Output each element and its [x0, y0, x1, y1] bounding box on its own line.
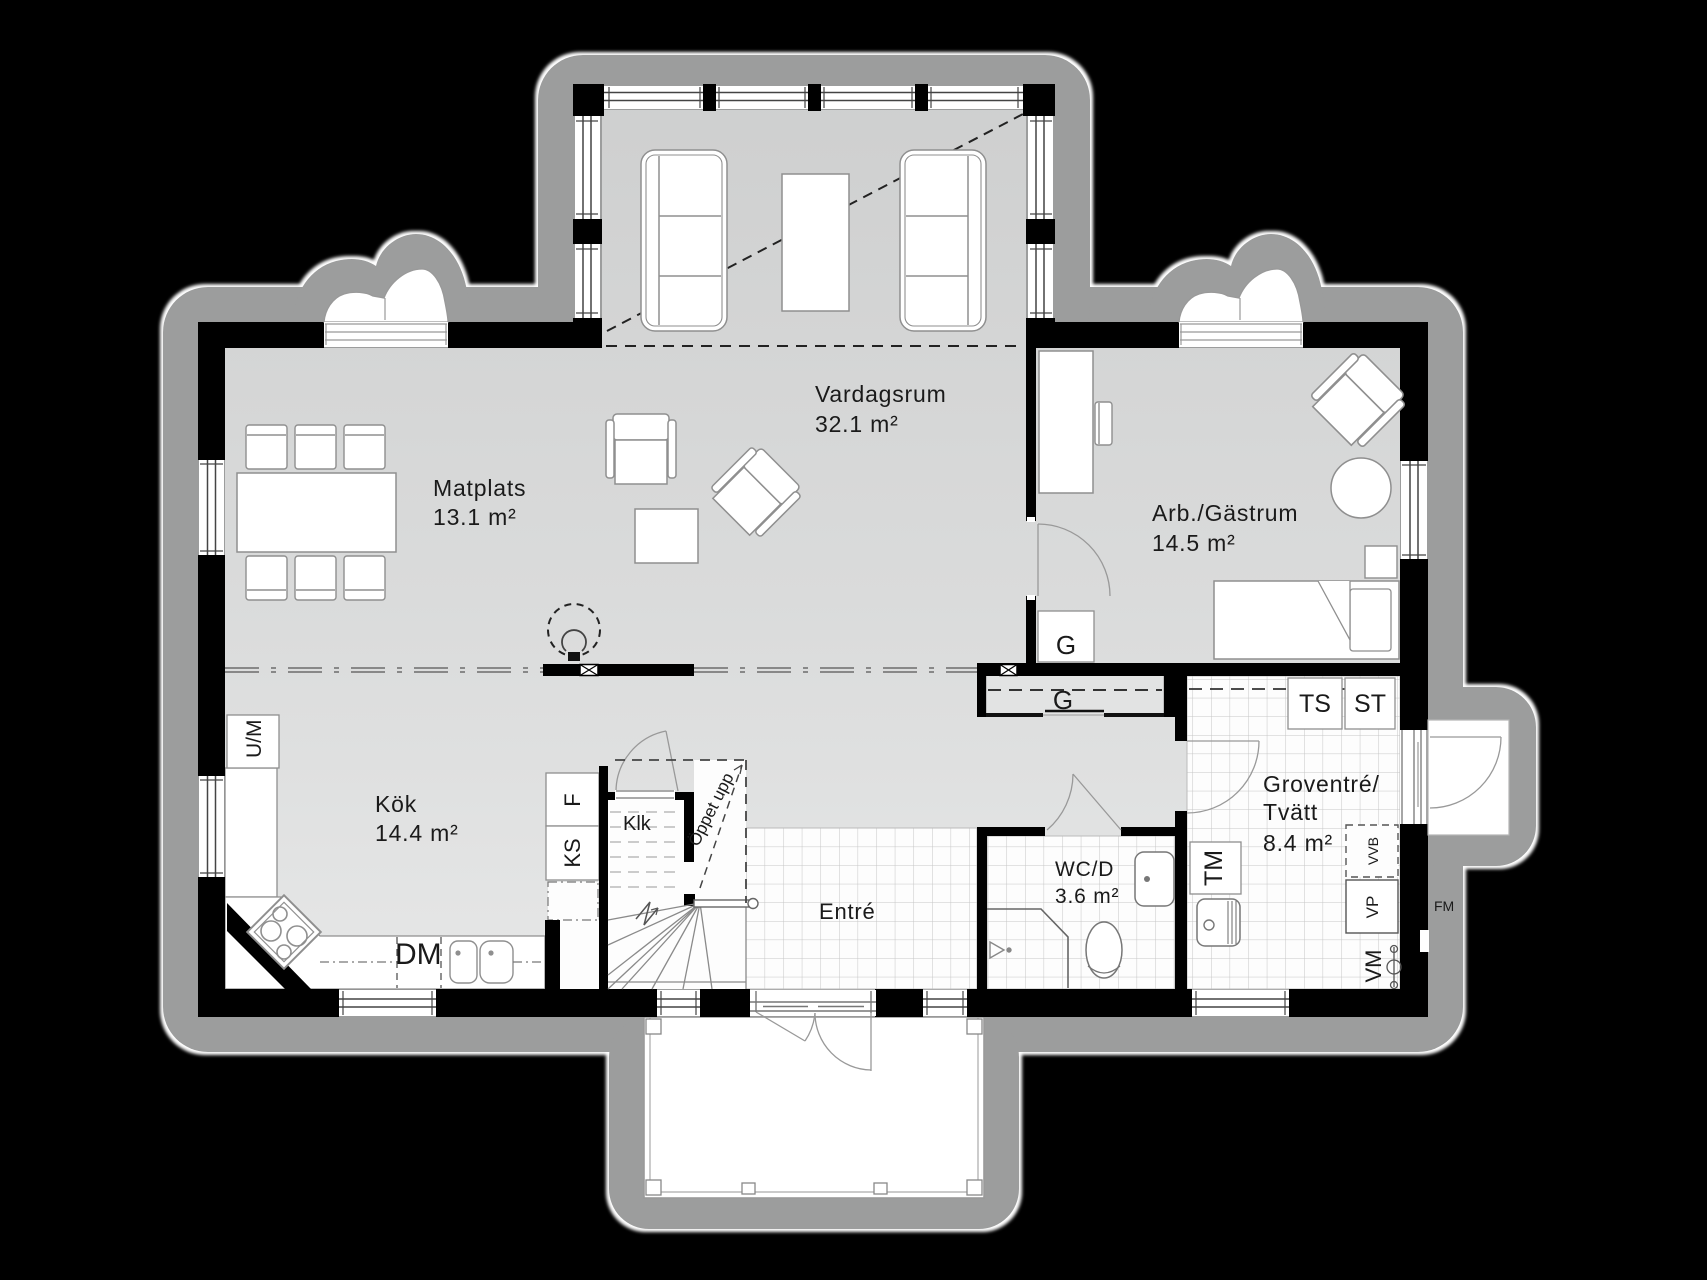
svg-text:FM: FM: [1434, 898, 1454, 914]
svg-text:Entré: Entré: [819, 899, 876, 924]
svg-text:32.1 m²: 32.1 m²: [815, 411, 899, 437]
svg-text:Vardagsrum: Vardagsrum: [815, 381, 947, 407]
svg-text:Matplats: Matplats: [433, 475, 526, 501]
svg-text:8.4 m²: 8.4 m²: [1263, 830, 1333, 856]
svg-text:WC/D: WC/D: [1055, 858, 1114, 881]
svg-text:G: G: [1056, 630, 1076, 660]
svg-text:3.6 m²: 3.6 m²: [1055, 885, 1119, 908]
svg-text:Kök: Kök: [375, 791, 417, 817]
svg-text:Tvätt: Tvätt: [1263, 799, 1318, 825]
svg-text:VP: VP: [1363, 896, 1382, 919]
svg-text:14.5 m²: 14.5 m²: [1152, 530, 1236, 556]
svg-text:F: F: [560, 793, 585, 806]
svg-text:VM: VM: [1361, 950, 1386, 983]
svg-text:14.4 m²: 14.4 m²: [375, 820, 459, 846]
svg-text:Klk: Klk: [623, 813, 652, 835]
svg-text:U/M: U/M: [243, 720, 266, 759]
svg-text:VVB: VVB: [1365, 837, 1381, 865]
svg-text:TM: TM: [1200, 850, 1228, 886]
svg-text:KS: KS: [560, 838, 585, 867]
svg-text:Arb./Gästrum: Arb./Gästrum: [1152, 500, 1298, 526]
svg-text:13.1 m²: 13.1 m²: [433, 504, 517, 530]
svg-text:ST: ST: [1354, 690, 1386, 718]
svg-text:TS: TS: [1299, 690, 1331, 718]
svg-text:DM: DM: [395, 938, 442, 971]
svg-text:Groventré/: Groventré/: [1263, 771, 1380, 797]
